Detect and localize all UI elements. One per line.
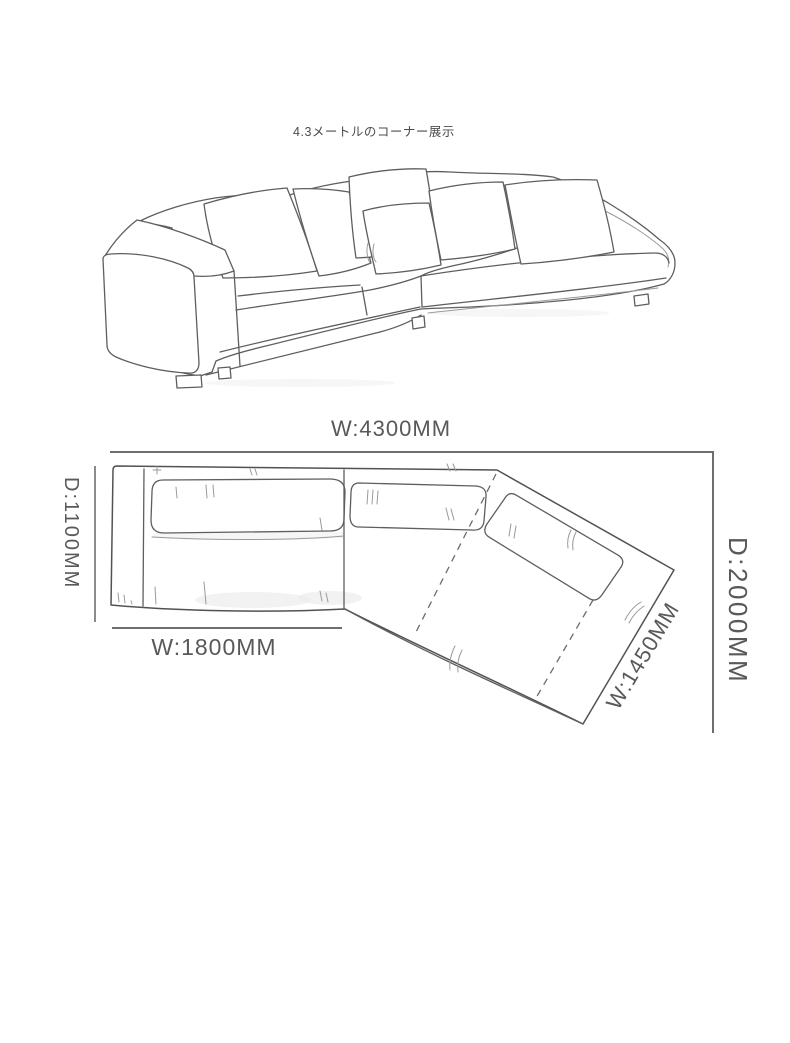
sofa-leg bbox=[176, 375, 202, 388]
floor-shadow bbox=[205, 379, 395, 387]
sofa-perspective-sketch bbox=[103, 169, 675, 388]
plan-middle-cushion bbox=[350, 483, 486, 530]
dimension-total-width: W:4300MM bbox=[241, 416, 541, 442]
armrest-front-face bbox=[103, 254, 199, 373]
page-title: 4.3メートルのコーナー展示 bbox=[0, 121, 748, 140]
dimension-left-section-width: W:1800MM bbox=[104, 634, 324, 661]
dimension-left-depth: D:1100MM bbox=[59, 477, 82, 589]
pillow-7 bbox=[505, 180, 614, 264]
sofa-leg bbox=[412, 316, 425, 329]
plan-shading bbox=[298, 591, 362, 605]
plan-dashed-divider bbox=[414, 474, 496, 636]
sofa-line-art bbox=[0, 0, 790, 1043]
sofa-leg bbox=[634, 294, 649, 306]
plan-left-cushion bbox=[151, 479, 345, 533]
pillow-5-front bbox=[363, 203, 441, 274]
product-dimension-page: 4.3メートルのコーナー展示 W:4300MM D:1100MM W:1800M… bbox=[0, 0, 790, 1043]
plan-armrest-line bbox=[143, 469, 144, 606]
sofa-leg bbox=[218, 367, 231, 379]
dimension-right-depth: D:2000MM bbox=[722, 537, 753, 684]
plan-dashed-divider bbox=[536, 600, 593, 698]
plan-chaise-cushion bbox=[481, 489, 625, 604]
plan-shading bbox=[195, 592, 311, 608]
pillow-6 bbox=[429, 182, 515, 260]
plan-outline bbox=[111, 466, 674, 724]
